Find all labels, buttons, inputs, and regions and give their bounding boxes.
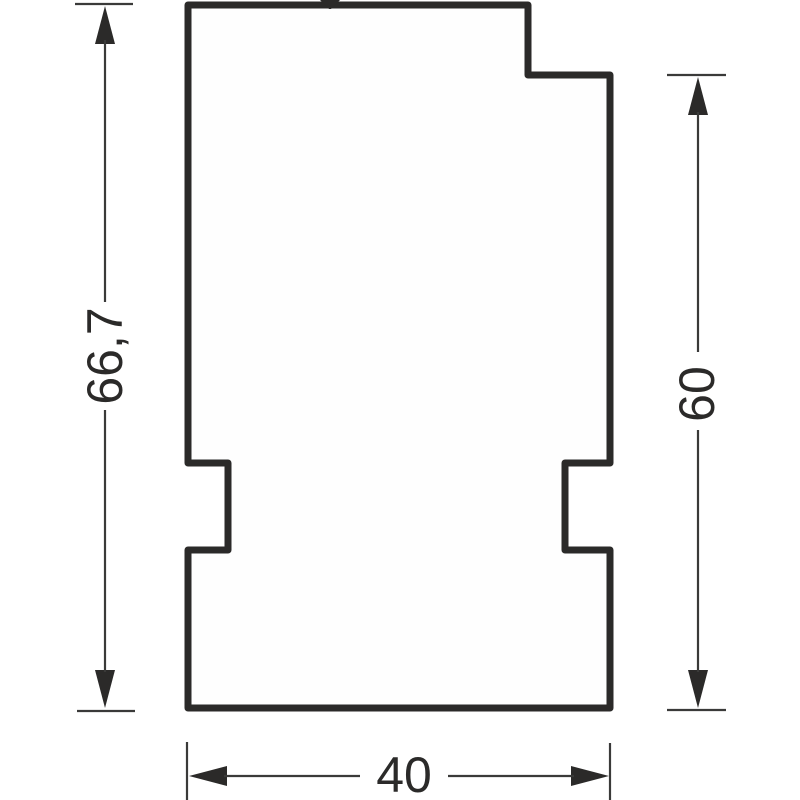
dimension-bottom: 40 (187, 742, 610, 800)
dimension-right: 60 (667, 75, 726, 710)
technical-drawing: 66,7 60 40 (0, 0, 800, 800)
part-outline (188, 5, 610, 708)
drawing-canvas: 66,7 60 40 (0, 0, 800, 800)
dimension-left: 66,7 (75, 4, 135, 711)
dimension-bottom-label: 40 (376, 747, 432, 800)
arrow-up-icon (688, 77, 708, 115)
arrow-right-icon (571, 766, 609, 786)
arrow-up-icon (95, 6, 115, 44)
arrow-down-icon (688, 670, 708, 708)
arrow-left-icon (189, 766, 227, 786)
dimension-right-label: 60 (669, 366, 725, 422)
arrow-down-icon (95, 670, 115, 708)
dimension-left-label: 66,7 (77, 307, 133, 404)
